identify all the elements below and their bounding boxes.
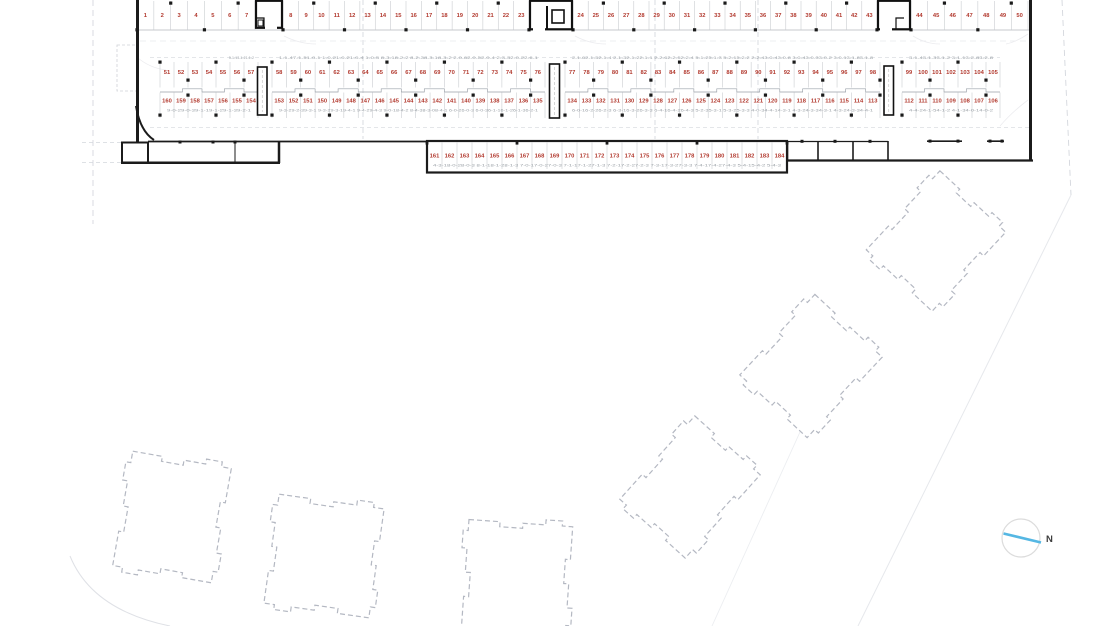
column-marker — [602, 2, 605, 5]
column-marker — [242, 79, 245, 82]
column-marker — [158, 114, 161, 117]
parking-space-number: 106 — [988, 99, 998, 105]
parking-space-number: 164 — [475, 154, 485, 160]
parking-space-number: 50 — [1016, 13, 1022, 19]
column-marker — [792, 114, 795, 117]
column-marker — [563, 114, 566, 117]
parking-space-number: 90 — [755, 70, 761, 76]
column-marker — [735, 114, 738, 117]
column-marker — [212, 141, 215, 144]
parking-space-number: 93 — [798, 70, 805, 76]
parking-space-number: 138 — [490, 99, 500, 105]
parking-space-number: 155 — [232, 99, 242, 105]
parking-space-number: 118 — [797, 99, 807, 105]
parking-space-number: 109 — [946, 99, 956, 105]
parking-space-number: 156 — [218, 99, 228, 105]
column-marker — [357, 79, 360, 82]
column-marker — [649, 94, 652, 97]
parking-space-number: 44 — [916, 13, 923, 19]
column-marker — [834, 140, 837, 143]
parking-space-number: 22 — [503, 13, 509, 19]
parking-space-number: 102 — [946, 70, 956, 76]
parking-space-number: 16 — [410, 13, 417, 19]
parking-space-number: 67 — [405, 70, 411, 76]
parking-space-number: 183 — [760, 154, 770, 160]
parking-space-number: 170 — [565, 154, 575, 160]
parking-space-number: 81 — [626, 70, 633, 76]
column-marker — [472, 79, 475, 82]
parking-space-number: 116 — [825, 99, 835, 105]
parking-space-number: 59 — [290, 70, 297, 76]
parking-space-number: 40 — [821, 13, 827, 19]
parking-space-number: 2 — [161, 13, 164, 19]
parking-space-number: 45 — [933, 13, 940, 19]
column-marker — [214, 114, 217, 117]
column-marker — [678, 61, 681, 64]
column-marker — [784, 2, 787, 5]
parking-space-number: 180 — [715, 154, 725, 160]
parking-space-number: 52 — [178, 70, 184, 76]
parking-space-number: 107 — [974, 99, 984, 105]
parking-space-number: 172 — [595, 154, 605, 160]
parking-space-number: 82 — [641, 70, 647, 76]
parking-space-number: 153 — [274, 99, 284, 105]
column-marker — [179, 141, 182, 144]
parking-space-number: 94 — [812, 70, 819, 76]
parking-space-number: 78 — [583, 70, 590, 76]
parking-space-number: 132 — [596, 99, 606, 105]
parking-space-number: 140 — [461, 99, 471, 105]
parking-space-number: 10 — [318, 13, 324, 19]
parking-space-number: 53 — [192, 70, 199, 76]
parking-space-number: 57 — [248, 70, 254, 76]
column-marker — [956, 61, 959, 64]
parking-space-number: 123 — [725, 99, 735, 105]
parking-space-number: 83 — [655, 70, 662, 76]
unit-annotation: 6-0-16-2-26-2-3 6-3-16-3-26-3-3 6-4-16-4… — [572, 109, 873, 113]
parking-space-number: 100 — [918, 70, 928, 76]
column-marker — [792, 61, 795, 64]
parking-space-number: 157 — [204, 99, 214, 105]
parking-space-number: 101 — [932, 70, 942, 76]
parking-space-number: 71 — [463, 70, 470, 76]
parking-space-number: 142 — [432, 99, 442, 105]
parking-space-number: 74 — [506, 70, 513, 76]
parking-space-number: 130 — [625, 99, 635, 105]
parking-space-number: 75 — [520, 70, 527, 76]
parking-space-number: 63 — [348, 70, 355, 76]
column-marker — [815, 28, 818, 31]
parking-space-number: 11 — [334, 13, 341, 19]
parking-space-number: 49 — [1000, 13, 1007, 19]
parking-space-number: 54 — [206, 70, 213, 76]
parking-space-number: 88 — [726, 70, 733, 76]
parking-space-number: 135 — [533, 99, 543, 105]
column-marker — [404, 28, 407, 31]
column-marker — [621, 114, 624, 117]
parking-space-number: 4 — [194, 13, 198, 19]
parking-space-number: 127 — [668, 99, 678, 105]
parking-space-number: 66 — [391, 70, 398, 76]
unit-annotation: 2-1-62-1-52-1-4 2-1-32-1-22-1-1 2-2-62-2… — [572, 56, 873, 60]
parking-space-number: 70 — [448, 70, 454, 76]
column-marker — [242, 94, 245, 97]
parking-space-number: 111 — [918, 99, 928, 105]
parking-space-number: 91 — [769, 70, 776, 76]
column-marker — [956, 114, 959, 117]
parking-space-number: 97 — [855, 70, 861, 76]
parking-space-number: 163 — [460, 154, 470, 160]
parking-space-number: 133 — [582, 99, 592, 105]
column-marker — [385, 61, 388, 64]
parking-space-number: 29 — [653, 13, 660, 19]
parking-space-number: 85 — [683, 70, 690, 76]
parking-space-number: 87 — [712, 70, 718, 76]
parking-space-number: 23 — [518, 13, 525, 19]
parking-space-number: 14 — [380, 13, 387, 19]
column-marker — [1010, 2, 1013, 5]
parking-space-number: 15 — [395, 13, 402, 19]
column-marker — [878, 94, 881, 97]
parking-space-number: 166 — [505, 154, 515, 160]
parking-space-number: 55 — [220, 70, 227, 76]
parking-space-number: 35 — [745, 13, 752, 19]
dashed-building-outlines — [113, 171, 1006, 626]
column-marker — [466, 28, 469, 31]
parking-space-number: 122 — [739, 99, 749, 105]
parking-space-number: 128 — [653, 99, 663, 105]
parking-space-number: 112 — [904, 99, 913, 105]
parking-space-number: 149 — [332, 99, 342, 105]
parking-space-number: 171 — [580, 154, 590, 160]
parking-space-number: 169 — [550, 154, 560, 160]
parking-space-number: 6 — [228, 13, 232, 19]
column-marker — [385, 114, 388, 117]
north-indicator: N — [1002, 519, 1053, 557]
parking-space-number: 146 — [375, 99, 385, 105]
parking-space-number: 34 — [729, 13, 736, 19]
unit-annotation: 3-1-43-1-33-1-2 3-1-13-2-83-2-8 — [909, 56, 993, 60]
parking-space-number: 84 — [669, 70, 676, 76]
parking-space-number: 68 — [420, 70, 427, 76]
column-marker — [435, 2, 438, 5]
column-marker — [169, 2, 172, 5]
parking-space-number: 126 — [682, 99, 692, 105]
parking-space-number: 46 — [950, 13, 957, 19]
parking-space-number: 96 — [841, 70, 848, 76]
parking-space-number: 145 — [389, 99, 399, 105]
building-outline — [461, 520, 572, 626]
column-marker — [900, 114, 903, 117]
parking-space-number: 119 — [782, 99, 792, 105]
parking-space-number: 147 — [361, 99, 371, 105]
parking-space-number: 56 — [234, 70, 241, 76]
parking-space-number: 129 — [639, 99, 649, 105]
parking-space-number: 121 — [753, 99, 763, 105]
column-marker — [989, 140, 992, 143]
unit-annotation: 4-3-18-0-28-0-3 8-1-18-1-28-1-3 7-0-17-0… — [433, 164, 781, 168]
column-marker — [414, 79, 417, 82]
parking-space-number: 92 — [784, 70, 790, 76]
parking-space-number: 179 — [700, 154, 710, 160]
column-marker — [707, 94, 710, 97]
column-marker — [443, 61, 446, 64]
parking-space-number: 37 — [775, 13, 781, 19]
parking-space-number: 38 — [790, 13, 797, 19]
column-marker — [707, 79, 710, 82]
parking-space-number: 43 — [866, 13, 873, 19]
column-marker — [328, 61, 331, 64]
unit-annotation: 9-3-29-2-39-3-1 9-3-29-3-19-4-1 9-4-29-4… — [279, 109, 538, 113]
unit-annotation: 1-1-47-1-51-0-1 1-0-21-0-21-0-4 1-0-5 8-… — [279, 56, 538, 60]
column-marker — [869, 140, 872, 143]
parking-space-number: 136 — [519, 99, 529, 105]
parking-space-number: 165 — [490, 154, 500, 160]
parking-space-number: 65 — [377, 70, 384, 76]
parking-space-number: 103 — [960, 70, 970, 76]
parking-space-number: 167 — [520, 154, 530, 160]
parking-space-number: 36 — [760, 13, 767, 19]
parking-space-number: 77 — [569, 70, 575, 76]
parking-space-number: 161 — [430, 154, 440, 160]
parking-space-number: 25 — [593, 13, 600, 19]
parking-space-number: 139 — [476, 99, 486, 105]
column-marker — [723, 2, 726, 5]
column-marker — [516, 142, 519, 145]
column-marker — [764, 94, 767, 97]
column-marker — [678, 114, 681, 117]
column-marker — [943, 2, 946, 5]
column-marker — [592, 79, 595, 82]
parking-space-number: 8 — [289, 13, 293, 19]
column-marker — [328, 114, 331, 117]
building-outline — [866, 171, 1005, 311]
parking-space-number: 62 — [333, 70, 339, 76]
parking-space-number: 27 — [623, 13, 629, 19]
parking-space-number: 113 — [868, 99, 878, 105]
column-marker — [214, 61, 217, 64]
parking-space-number: 114 — [854, 99, 864, 105]
north-label: N — [1046, 534, 1053, 545]
parking-space-number: 48 — [983, 13, 990, 19]
column-marker — [186, 79, 189, 82]
column-marker — [414, 94, 417, 97]
column-marker — [357, 94, 360, 97]
parking-space-number: 152 — [289, 99, 299, 105]
parking-space-number: 17 — [426, 13, 432, 19]
parking-space-number: 134 — [567, 99, 577, 105]
parking-space-number: 31 — [684, 13, 691, 19]
parking-space-number: 24 — [577, 13, 584, 19]
parking-space-number: 168 — [535, 154, 545, 160]
parking-space-number: 79 — [598, 70, 605, 76]
building-outline — [264, 494, 384, 618]
column-marker — [850, 114, 853, 117]
parking-space-number: 80 — [612, 70, 618, 76]
column-marker — [735, 61, 738, 64]
column-marker — [900, 61, 903, 64]
column-marker — [976, 28, 979, 31]
parking-space-number: 117 — [811, 99, 820, 105]
parking-space-number: 5 — [211, 13, 215, 19]
parking-space-number: 51 — [164, 70, 171, 76]
parking-space-number: 86 — [698, 70, 705, 76]
parking-space-number: 26 — [608, 13, 615, 19]
column-marker — [234, 141, 237, 144]
parking-space-number: 110 — [932, 99, 941, 105]
parking-space-number: 148 — [346, 99, 356, 105]
parking-site-plan: 1234567891011121314151617181920212223242… — [0, 0, 1110, 626]
parking-space-number: 137 — [504, 99, 514, 105]
parking-space-number: 178 — [685, 154, 695, 160]
parking-space-number: 150 — [317, 99, 327, 105]
column-marker — [270, 114, 273, 117]
parking-space-number: 58 — [276, 70, 283, 76]
column-marker — [929, 140, 932, 143]
parking-space-number: 115 — [840, 99, 850, 105]
column-marker — [984, 79, 987, 82]
column-marker — [821, 79, 824, 82]
parking-space-number: 12 — [349, 13, 355, 19]
parking-space-number: 159 — [176, 99, 186, 105]
parking-space-number: 162 — [445, 154, 455, 160]
parking-space-number: 72 — [477, 70, 483, 76]
unit-annotation: 5-1-13-1-21-1-2 — [229, 56, 254, 60]
parking-space-number: 143 — [418, 99, 428, 105]
column-marker — [801, 140, 804, 143]
column-marker — [237, 2, 240, 5]
parking-space-number: 18 — [441, 13, 448, 19]
parking-space-number: 95 — [827, 70, 834, 76]
parking-space-number: 47 — [966, 13, 972, 19]
parking-space-number: 69 — [434, 70, 441, 76]
column-marker — [312, 2, 315, 5]
parking-space-number: 158 — [190, 99, 200, 105]
parking-space-number: 32 — [699, 13, 705, 19]
parking-space-number: 120 — [768, 99, 778, 105]
column-marker — [649, 79, 652, 82]
parking-space-number: 154 — [246, 99, 256, 105]
parking-space-number: 28 — [638, 13, 645, 19]
parking-space-number: 99 — [906, 70, 913, 76]
parking-space-number: 19 — [457, 13, 464, 19]
column-marker — [270, 61, 273, 64]
parking-space-number: 176 — [655, 154, 665, 160]
column-marker — [928, 94, 931, 97]
column-marker — [764, 79, 767, 82]
parking-space-number: 39 — [805, 13, 812, 19]
column-marker — [696, 142, 699, 145]
parking-space-number: 144 — [404, 99, 414, 105]
parking-space-number: 182 — [745, 154, 755, 160]
column-marker — [957, 140, 960, 143]
parking-space-number: 3 — [178, 13, 182, 19]
parking-space-number: 181 — [730, 154, 740, 160]
parking-space-number: 20 — [472, 13, 478, 19]
unit-annotation: 9-0-29-0-39-1-19-1-29-1-39-2-1 — [167, 109, 251, 113]
unit-annotation: 4-4-24-1-54-1-2 4-1-34-0-14-0-2 — [909, 109, 993, 113]
column-marker — [500, 114, 503, 117]
column-marker — [693, 28, 696, 31]
parking-space-number: 13 — [364, 13, 371, 19]
parking-space-number: 89 — [741, 70, 748, 76]
column-marker — [497, 2, 500, 5]
column-marker — [563, 61, 566, 64]
parking-space-number: 64 — [362, 70, 369, 76]
parking-space-number: 177 — [670, 154, 680, 160]
column-marker — [928, 79, 931, 82]
plan-canvas: 1234567891011121314151617181920212223242… — [0, 0, 1110, 626]
column-marker — [621, 61, 624, 64]
parking-space-number: 105 — [988, 70, 998, 76]
column-marker — [821, 94, 824, 97]
column-marker — [529, 94, 532, 97]
column-marker — [632, 28, 635, 31]
parking-space-number: 125 — [696, 99, 706, 105]
column-marker — [374, 2, 377, 5]
parking-space-number: 98 — [870, 70, 877, 76]
parking-space-number: 141 — [447, 99, 457, 105]
parking-space-number: 30 — [669, 13, 675, 19]
column-marker — [606, 142, 609, 145]
parking-space-number: 60 — [305, 70, 311, 76]
parking-space-number: 131 — [610, 99, 620, 105]
column-marker — [343, 28, 346, 31]
column-marker — [299, 79, 302, 82]
parking-space-number: 42 — [851, 13, 857, 19]
parking-space-number: 41 — [836, 13, 843, 19]
parking-space-number: 151 — [303, 99, 313, 105]
parking-space-number: 9 — [304, 13, 308, 19]
building-outline — [620, 416, 760, 558]
column-marker — [845, 2, 848, 5]
column-marker — [472, 94, 475, 97]
column-marker — [186, 94, 189, 97]
column-marker — [443, 114, 446, 117]
parking-space-number: 124 — [711, 99, 721, 105]
column-marker — [592, 94, 595, 97]
parking-space-number: 184 — [775, 154, 785, 160]
building-outline — [113, 451, 232, 583]
parking-space-number: 175 — [640, 154, 650, 160]
column-marker — [850, 61, 853, 64]
parking-space-number: 73 — [491, 70, 498, 76]
column-marker — [878, 79, 881, 82]
column-marker — [663, 2, 666, 5]
column-marker — [984, 94, 987, 97]
parking-space-number: 7 — [245, 13, 248, 19]
column-marker — [299, 94, 302, 97]
parking-space-number: 160 — [162, 99, 172, 105]
column-marker — [1001, 140, 1004, 143]
parking-space-number: 76 — [535, 70, 542, 76]
column-marker — [203, 28, 206, 31]
parking-space-number: 61 — [319, 70, 326, 76]
column-marker — [754, 28, 757, 31]
parking-space-number: 108 — [960, 99, 970, 105]
building-outline — [740, 294, 882, 437]
parking-space-number: 104 — [974, 70, 984, 76]
column-marker — [500, 61, 503, 64]
parking-space-number: 21 — [487, 13, 494, 19]
parking-space-number: 174 — [625, 154, 635, 160]
column-marker — [529, 79, 532, 82]
parking-space-number: 173 — [610, 154, 620, 160]
parking-space-number: 33 — [714, 13, 721, 19]
column-marker — [158, 61, 161, 64]
parking-space-number: 1 — [144, 13, 148, 19]
